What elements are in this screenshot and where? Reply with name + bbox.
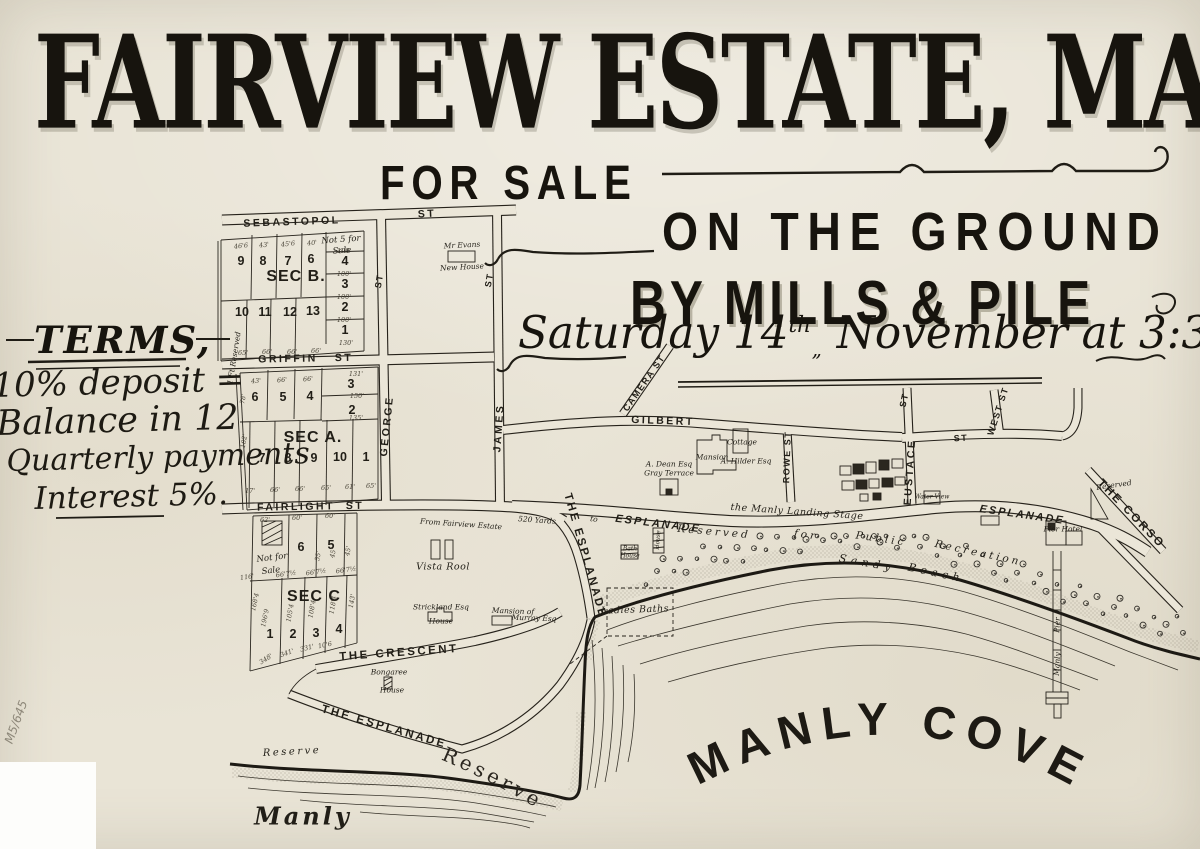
terms-heading: TERMS,: [34, 318, 212, 362]
paper-cutout: [0, 762, 96, 849]
date-post: November at 3:30.: [823, 306, 1200, 359]
manly-cove-label: MANLY COVE: [679, 692, 1100, 799]
poster-title: FAIRVIEW ESTATE, MANLY: [34, 8, 1200, 159]
date-separator: „: [812, 337, 822, 361]
on-the-ground-heading: ON THE GROUND: [662, 201, 1169, 263]
estate-sale-poster: SEBASTOPOLSTGRIFFINSTFAIRLIGHTSTGEORGEST…: [0, 0, 1200, 849]
terms-line-interest: Interest 5%.: [34, 476, 228, 517]
date-ordinal: th: [788, 313, 810, 338]
for-sale-heading: FOR SALE: [380, 156, 638, 211]
date-pre: Saturday 14: [518, 306, 788, 359]
reserve-label: Reserve: [439, 742, 548, 813]
terms-line-balance: Balance in 12: [0, 398, 239, 444]
auction-date-line: Saturday 14th„ November at 3:30.: [518, 306, 1200, 361]
